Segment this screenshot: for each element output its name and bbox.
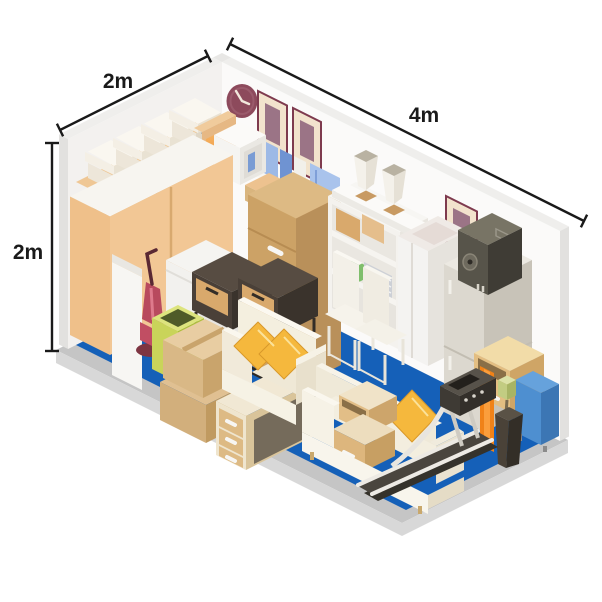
dimension-height: 2m bbox=[13, 143, 59, 351]
length-label: 4m bbox=[409, 104, 439, 127]
height-label: 2m bbox=[13, 241, 43, 264]
width-label: 2m bbox=[103, 70, 133, 93]
isometric-scene: 2m 4m 2m bbox=[0, 0, 602, 602]
speaker-icon bbox=[458, 213, 522, 295]
white-panel bbox=[112, 254, 142, 390]
storage-unit-illustration: 2m 4m 2m bbox=[0, 0, 602, 602]
